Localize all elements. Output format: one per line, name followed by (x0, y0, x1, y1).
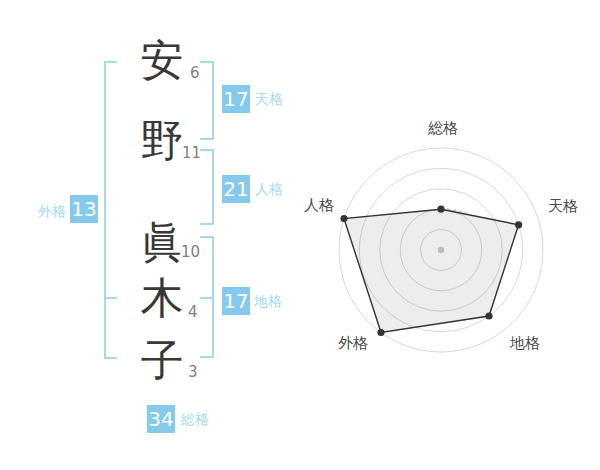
stroke-count-2: 11 (182, 145, 201, 161)
radar-axis-label-soukaku: 総格 (428, 120, 458, 136)
gaikaku-value-badge: 13 (70, 195, 98, 223)
chikaku-bracket-line (212, 236, 214, 358)
tenkaku-bracket-tick-bottom (200, 138, 212, 140)
tenkaku-bracket-line (212, 61, 214, 140)
gaikaku-bracket-line (104, 61, 106, 359)
chikaku-bracket-tick-top (200, 236, 212, 238)
jinkaku-bracket-tick-bottom (200, 223, 212, 225)
name-char-1: 安 (140, 38, 184, 82)
jinkaku-bracket-tick-top (200, 149, 212, 151)
tenkaku-value-badge: 17 (222, 85, 250, 113)
soukaku-label: 総格 (181, 412, 209, 427)
tenkaku-label: 天格 (255, 92, 283, 107)
radar-axis-label-jinkaku: 人格 (304, 197, 334, 213)
jinkaku-value-badge: 21 (222, 175, 250, 203)
stroke-count-1: 6 (190, 65, 200, 81)
jinkaku-label: 人格 (255, 182, 283, 197)
gaikaku-label: 外格 (38, 204, 66, 219)
radar-axis-label-chikaku: 地格 (510, 335, 540, 351)
stroke-count-3: 10 (181, 244, 200, 260)
gaikaku-bracket-tick-bottom (104, 357, 117, 359)
chikaku-value-badge: 17 (222, 287, 250, 315)
radar-axis-label-gaikaku: 外格 (338, 335, 368, 351)
stroke-count-5: 3 (188, 364, 198, 380)
stroke-count-4: 4 (188, 304, 198, 320)
gaikaku-bracket-tick-mid (104, 297, 117, 299)
chikaku-bracket-tick-mid (200, 297, 212, 299)
chikaku-bracket-tick-bottom (200, 356, 212, 358)
soukaku-value-badge: 34 (147, 405, 175, 433)
name-char-2: 野 (140, 118, 184, 162)
radar-axis-label-tenkaku: 天格 (548, 198, 578, 214)
jinkaku-bracket-line (212, 149, 214, 225)
name-char-5: 子 (140, 338, 184, 382)
name-char-4: 木 (140, 276, 184, 320)
name-analysis-panel: 安 野 眞 木 子 6 11 10 4 3 17 天格 21 人格 17 地格 … (0, 0, 600, 470)
chikaku-label: 地格 (254, 294, 282, 309)
gaikaku-bracket-tick-top (104, 61, 117, 63)
name-char-3: 眞 (140, 220, 184, 264)
tenkaku-bracket-tick-top (200, 61, 212, 63)
